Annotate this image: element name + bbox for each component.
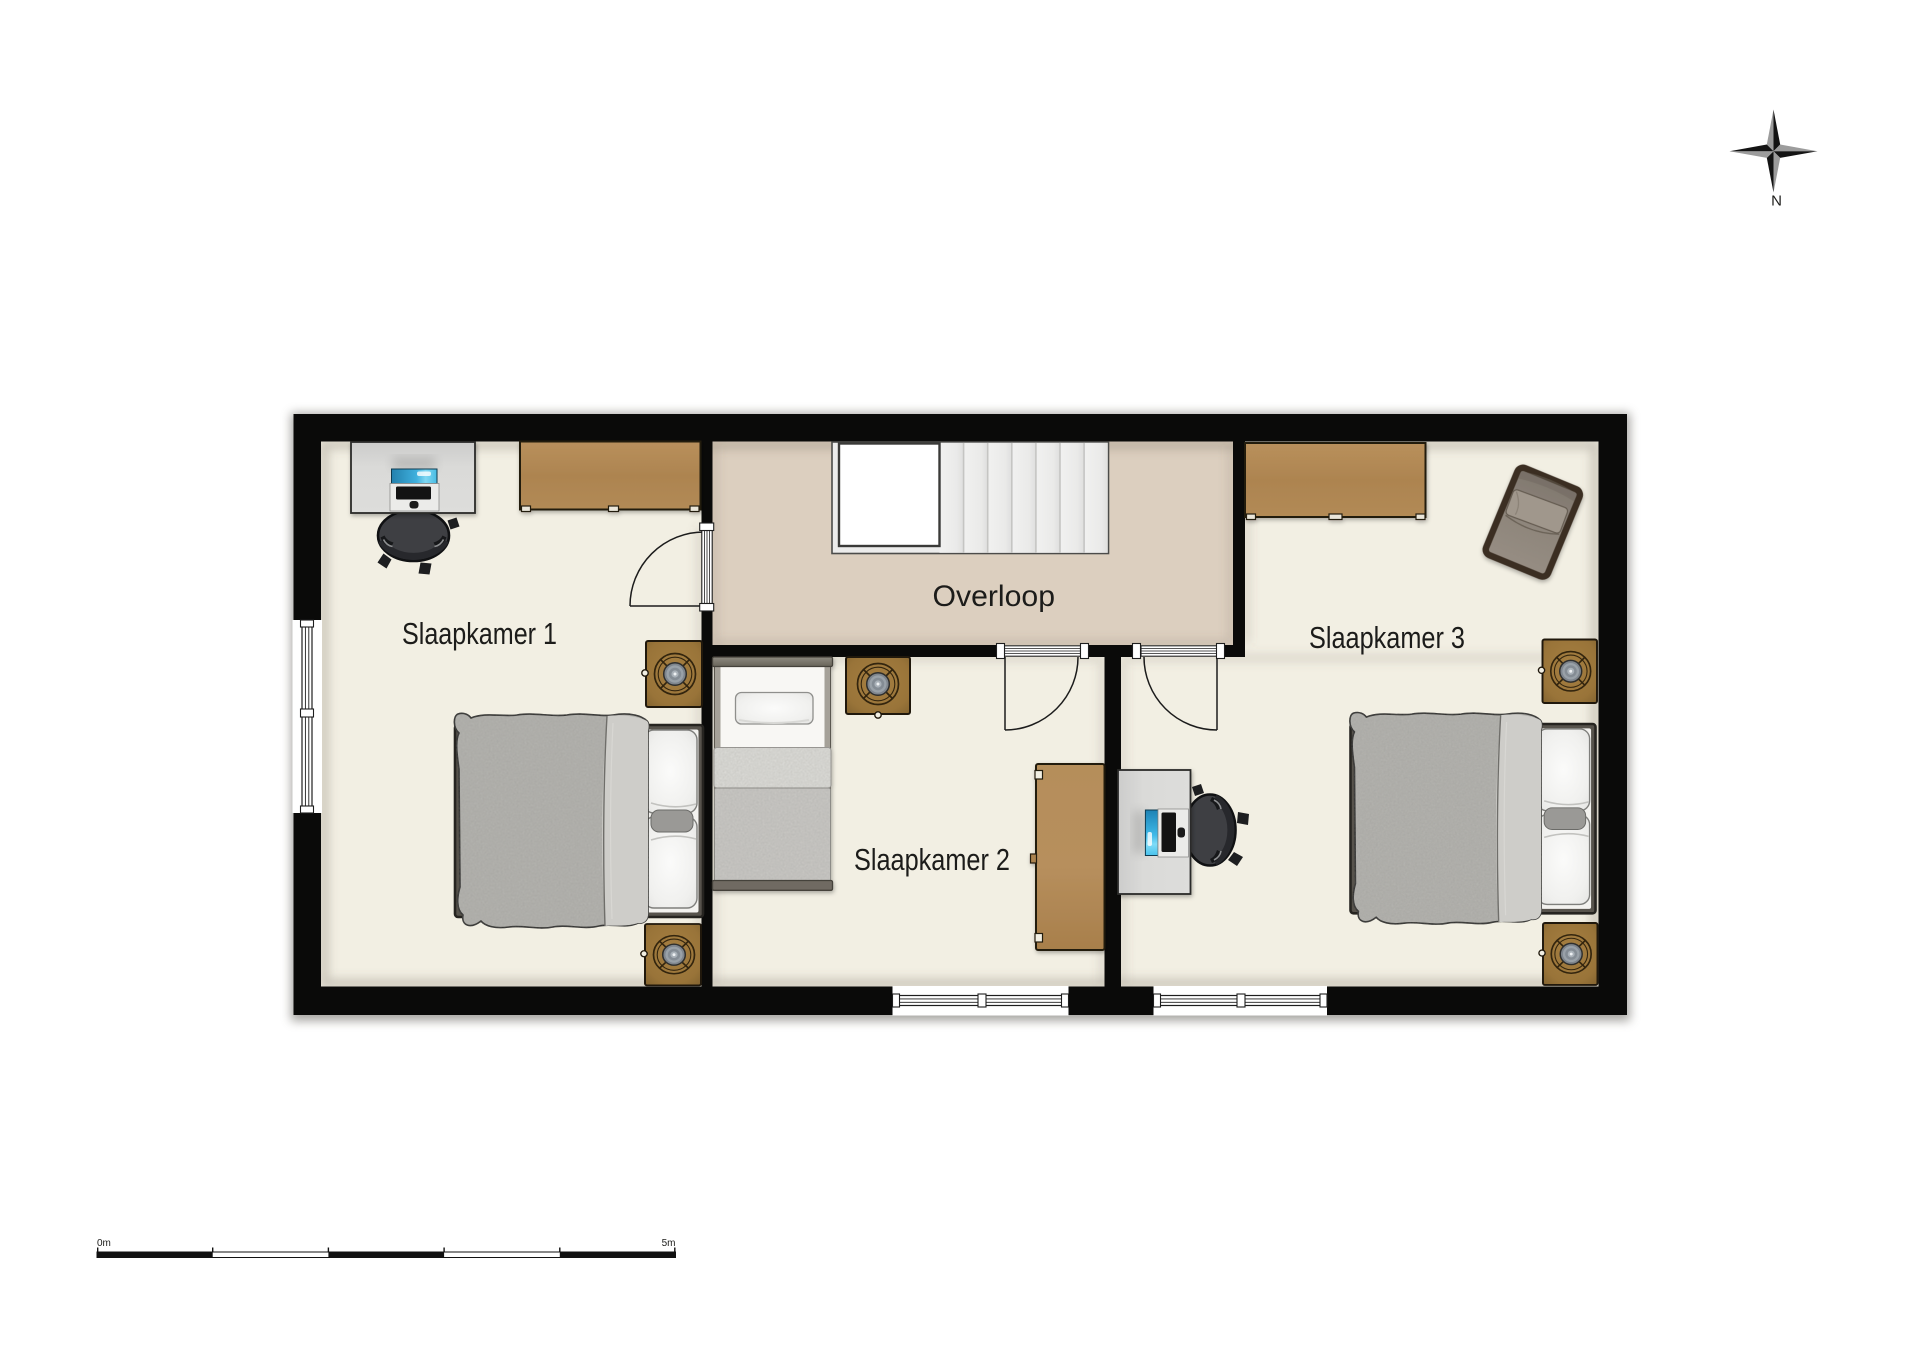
- svg-text:Slaapkamer 3: Slaapkamer 3: [1309, 620, 1465, 655]
- svg-text:Slaapkamer 2: Slaapkamer 2: [854, 842, 1010, 877]
- svg-text:0m: 0m: [97, 1238, 111, 1249]
- svg-text:Overloop: Overloop: [933, 580, 1056, 613]
- svg-text:Slaapkamer 1: Slaapkamer 1: [402, 616, 557, 651]
- svg-text:5m: 5m: [662, 1238, 676, 1249]
- svg-text:N: N: [1771, 193, 1782, 210]
